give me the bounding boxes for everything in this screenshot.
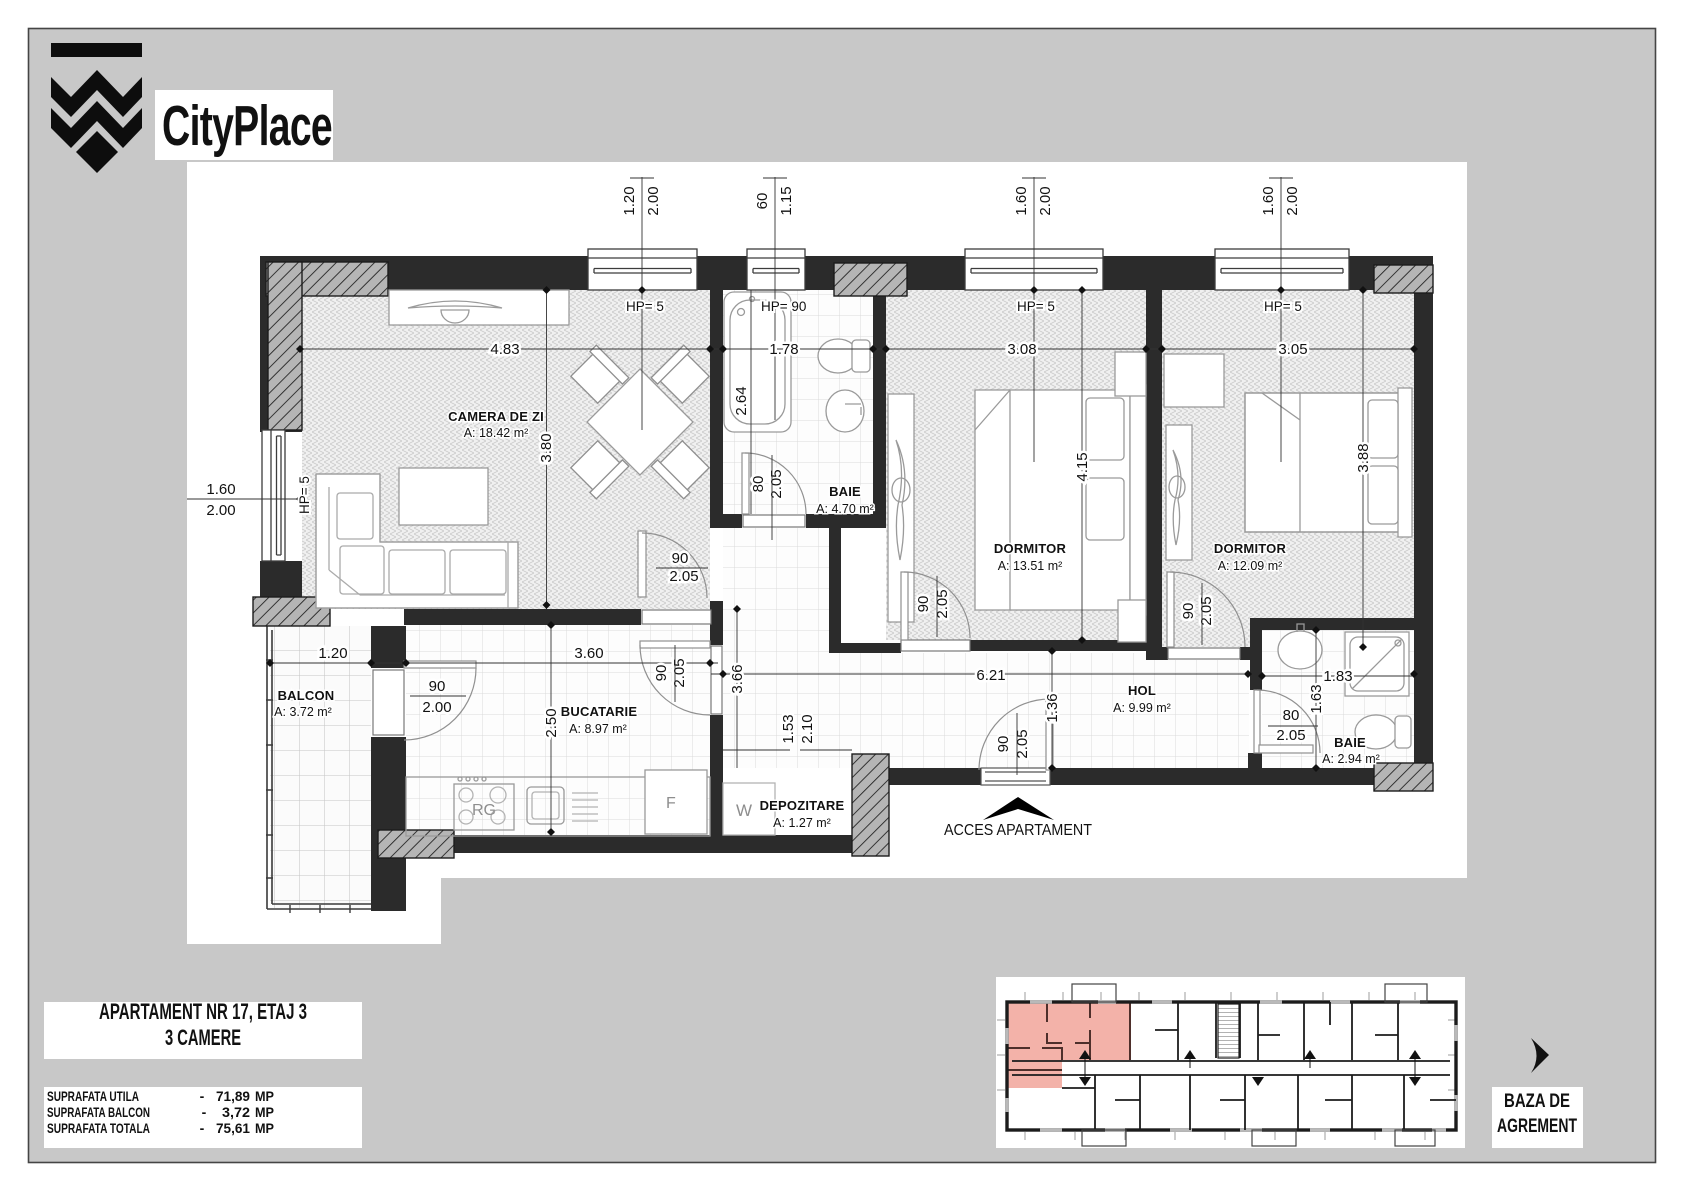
svg-text:1.60: 1.60 (206, 481, 235, 498)
svg-text:DEPOZITARE: DEPOZITARE (760, 798, 845, 813)
svg-text:3.88: 3.88 (1355, 443, 1372, 472)
svg-text:71,89: 71,89 (216, 1088, 250, 1104)
svg-text:HP= 90: HP= 90 (761, 299, 806, 314)
svg-text:2.50: 2.50 (543, 708, 560, 737)
svg-text:90: 90 (915, 596, 932, 613)
svg-text:2.00: 2.00 (645, 186, 662, 215)
svg-text:A: 1.27 m²: A: 1.27 m² (773, 816, 831, 830)
svg-text:1.53: 1.53 (780, 714, 797, 743)
svg-text:BAZA DE: BAZA DE (1504, 1091, 1570, 1112)
svg-text:A: 4.70 m²: A: 4.70 m² (816, 502, 874, 516)
svg-text:ACCES APARTAMENT: ACCES APARTAMENT (944, 822, 1092, 839)
svg-text:CityPlace: CityPlace (162, 94, 332, 158)
svg-text:A: 13.51 m²: A: 13.51 m² (998, 559, 1063, 573)
svg-text:90: 90 (995, 736, 1012, 753)
svg-text:RG: RG (472, 802, 496, 819)
svg-text:75,61: 75,61 (216, 1120, 250, 1136)
svg-text:2.00: 2.00 (422, 699, 451, 716)
svg-text:1.15: 1.15 (778, 186, 795, 215)
svg-text:4.83: 4.83 (490, 341, 519, 358)
svg-text:90: 90 (429, 678, 446, 695)
svg-text:MP: MP (255, 1088, 274, 1104)
svg-text:HP= 5: HP= 5 (626, 299, 664, 314)
svg-text:-: - (200, 1120, 205, 1136)
svg-text:A: 18.42 m²: A: 18.42 m² (464, 426, 529, 440)
svg-text:MP: MP (255, 1104, 274, 1120)
svg-text:1.20: 1.20 (621, 186, 638, 215)
svg-text:2.00: 2.00 (1284, 186, 1301, 215)
svg-text:W: W (736, 801, 752, 820)
svg-text:HOL: HOL (1128, 683, 1156, 698)
svg-text:3.60: 3.60 (574, 645, 603, 662)
svg-text:1.36: 1.36 (1044, 693, 1061, 722)
svg-text:3.80: 3.80 (538, 433, 555, 462)
svg-text:2.00: 2.00 (206, 502, 235, 519)
svg-text:AGREMENT: AGREMENT (1497, 1116, 1577, 1137)
svg-text:2.05: 2.05 (1198, 596, 1215, 625)
svg-text:BAIE: BAIE (1334, 735, 1366, 750)
svg-text:A: 2.94 m²: A: 2.94 m² (1322, 752, 1380, 766)
svg-text:A: 3.72 m²: A: 3.72 m² (274, 705, 332, 719)
svg-text:4.15: 4.15 (1074, 452, 1091, 481)
svg-text:1.60: 1.60 (1013, 186, 1030, 215)
svg-text:A: 12.09 m²: A: 12.09 m² (1218, 559, 1283, 573)
svg-text:2.05: 2.05 (671, 658, 688, 687)
svg-text:90: 90 (672, 550, 689, 567)
svg-text:3.05: 3.05 (1278, 341, 1307, 358)
svg-text:APARTAMENT NR 17, ETAJ 3: APARTAMENT NR 17, ETAJ 3 (99, 999, 307, 1024)
svg-text:2.05: 2.05 (669, 568, 698, 585)
svg-text:HP= 5: HP= 5 (1264, 299, 1302, 314)
svg-text:80: 80 (750, 476, 767, 493)
svg-text:3 CAMERE: 3 CAMERE (165, 1025, 241, 1050)
svg-text:2.05: 2.05 (768, 469, 785, 498)
svg-text:1.20: 1.20 (318, 645, 347, 662)
svg-text:BAIE: BAIE (829, 484, 861, 499)
svg-text:2.05: 2.05 (1276, 727, 1305, 744)
svg-text:1.63: 1.63 (1308, 684, 1325, 713)
svg-text:1.78: 1.78 (769, 341, 798, 358)
svg-text:A: 9.99 m²: A: 9.99 m² (1113, 701, 1171, 715)
svg-text:60: 60 (754, 193, 771, 210)
svg-text:DORMITOR: DORMITOR (1214, 541, 1287, 556)
svg-text:SUPRAFATA BALCON: SUPRAFATA BALCON (47, 1104, 150, 1120)
svg-text:3,72: 3,72 (222, 1104, 250, 1120)
svg-text:MP: MP (255, 1120, 274, 1136)
svg-text:90: 90 (653, 665, 670, 682)
svg-text:BUCATARIE: BUCATARIE (561, 704, 638, 719)
svg-text:CAMERA DE ZI: CAMERA DE ZI (448, 409, 544, 424)
svg-text:90: 90 (1180, 603, 1197, 620)
svg-text:1.60: 1.60 (1260, 186, 1277, 215)
svg-text:F: F (666, 795, 676, 812)
svg-text:2.00: 2.00 (1037, 186, 1054, 215)
svg-text:HP= 5: HP= 5 (297, 476, 312, 514)
svg-text:80: 80 (1283, 707, 1300, 724)
svg-text:BALCON: BALCON (278, 688, 335, 703)
svg-text:HP= 5: HP= 5 (1017, 299, 1055, 314)
svg-text:-: - (202, 1104, 207, 1120)
svg-text:3.08: 3.08 (1007, 341, 1036, 358)
svg-text:A: 8.97 m²: A: 8.97 m² (569, 722, 627, 736)
svg-text:1.83: 1.83 (1323, 668, 1352, 685)
svg-text:SUPRAFATA TOTALA: SUPRAFATA TOTALA (47, 1120, 150, 1136)
svg-text:3.66: 3.66 (729, 664, 746, 693)
svg-text:6.21: 6.21 (976, 667, 1005, 684)
svg-text:2.64: 2.64 (733, 386, 750, 415)
svg-text:2.10: 2.10 (799, 714, 816, 743)
svg-text:SUPRAFATA UTILA: SUPRAFATA UTILA (47, 1088, 139, 1104)
svg-text:DORMITOR: DORMITOR (994, 541, 1067, 556)
svg-text:-: - (200, 1088, 205, 1104)
